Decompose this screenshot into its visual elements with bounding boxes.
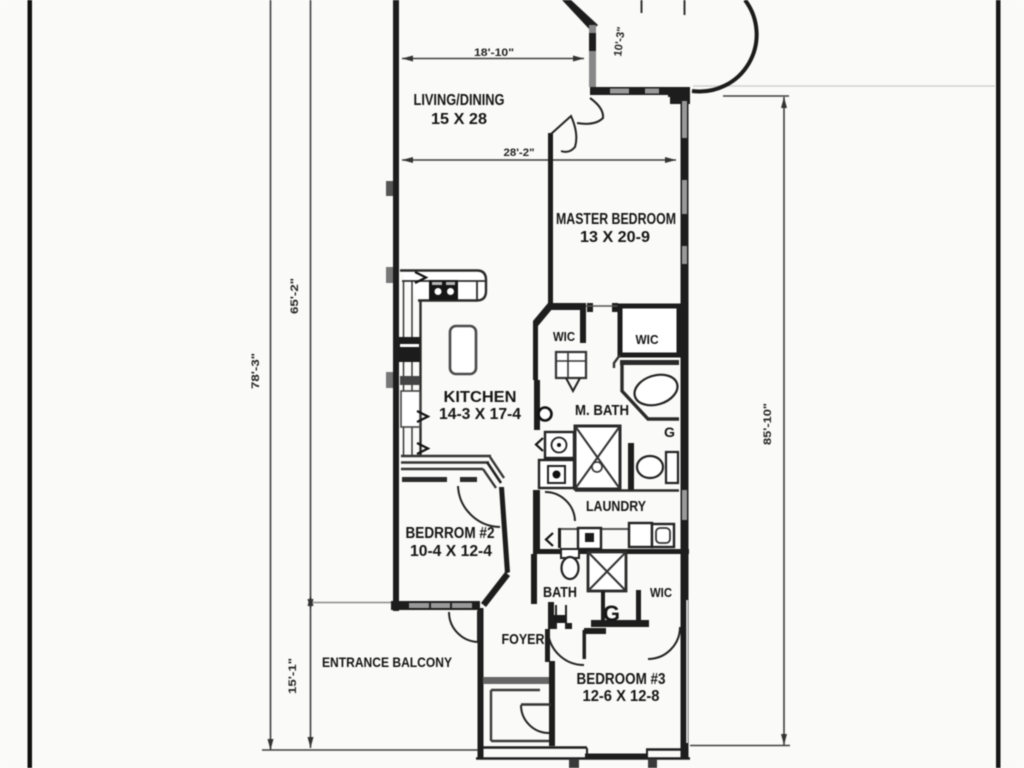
svg-text:MASTER BEDROOM: MASTER BEDROOM — [556, 211, 676, 228]
svg-text:LIVING/DINING: LIVING/DINING — [414, 92, 505, 109]
svg-text:M. BATH: M. BATH — [575, 402, 629, 419]
svg-text:WIC: WIC — [650, 585, 673, 600]
svg-text:LAUNDRY: LAUNDRY — [586, 498, 646, 515]
svg-text:WIC: WIC — [636, 332, 660, 347]
svg-text:12-6 X 12-8: 12-6 X 12-8 — [583, 688, 660, 705]
svg-text:BEDROOM #3: BEDROOM #3 — [577, 671, 666, 688]
svg-text:13 X 20-9: 13 X 20-9 — [580, 229, 650, 246]
svg-text:14-3 X 17-4: 14-3 X 17-4 — [439, 406, 521, 423]
svg-text:WIC: WIC — [553, 329, 576, 344]
svg-text:18'-10": 18'-10" — [474, 47, 514, 59]
svg-text:ENTRANCE BALCONY: ENTRANCE BALCONY — [322, 654, 453, 670]
svg-text:FOYER: FOYER — [502, 631, 545, 648]
svg-text:KITCHEN: KITCHEN — [444, 389, 517, 406]
svg-text:15 X 28: 15 X 28 — [431, 111, 487, 128]
svg-text:10-4 X 12-4: 10-4 X 12-4 — [410, 543, 492, 560]
svg-text:BATH: BATH — [543, 584, 577, 601]
svg-text:85'-10": 85'-10" — [762, 403, 774, 445]
svg-text:65'-2": 65'-2" — [289, 278, 301, 314]
svg-text:G: G — [603, 601, 620, 626]
svg-text:78'-3": 78'-3" — [250, 353, 262, 389]
svg-text:G: G — [664, 424, 675, 440]
svg-text:BEDRROM #2: BEDRROM #2 — [406, 525, 495, 542]
svg-text:15'-1": 15'-1" — [287, 658, 299, 694]
svg-text:28'-2": 28'-2" — [504, 147, 535, 159]
